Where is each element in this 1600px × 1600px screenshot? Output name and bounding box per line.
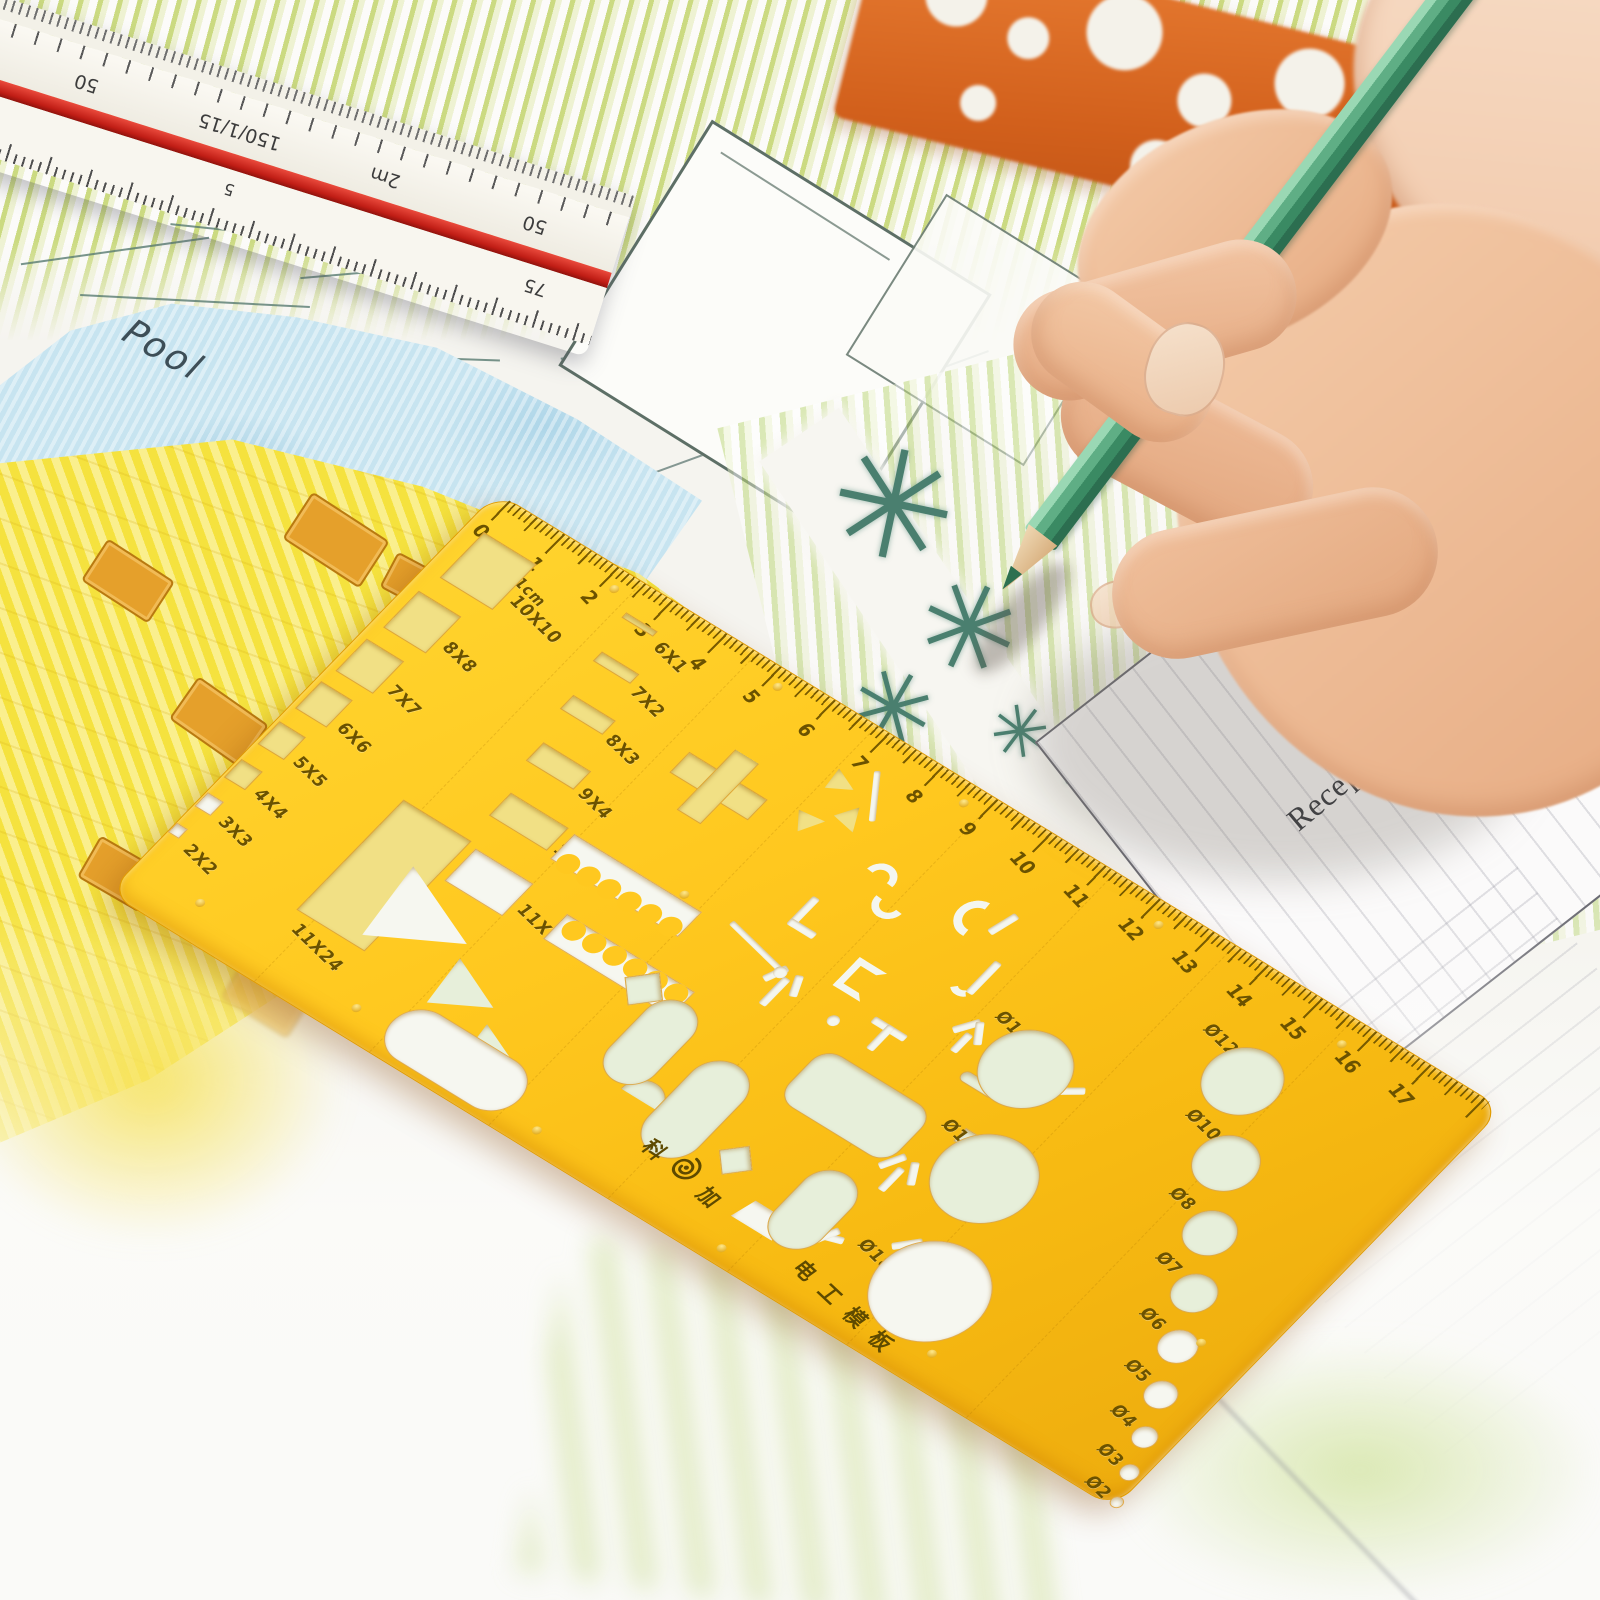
stencil-hole <box>1003 13 1054 64</box>
rivet-dot <box>193 897 207 908</box>
fork-cutout <box>788 975 804 998</box>
square-label: 2X2 <box>178 841 223 880</box>
circle-label: Ø7 <box>1150 1248 1187 1279</box>
product-photo: Pool ✳ ✳ ✳ ✳ ✳ Reception ✳ ✳ ✳ ✳ 50 150/… <box>0 0 1600 1600</box>
scale-ruler-number: 50 <box>72 69 102 97</box>
stencil-hole <box>956 81 1000 125</box>
needle-cutout <box>729 921 784 972</box>
slot-cutout-9x4 <box>526 742 592 790</box>
slash-cutout <box>869 771 881 822</box>
rivet-dot <box>715 1243 729 1254</box>
small-triangle-cutout <box>833 807 864 835</box>
square-label: 7X7 <box>381 682 426 721</box>
squiggle-cutout <box>862 862 898 893</box>
square-label: 4X4 <box>248 785 293 824</box>
slot-label: 8X3 <box>600 731 645 770</box>
rounded-rect-cutout <box>775 1046 936 1165</box>
rivet-dot <box>530 1125 544 1136</box>
square-label: 6X6 <box>331 719 376 758</box>
antenna-cutout <box>906 1162 920 1186</box>
squiggle-cutout <box>871 889 907 920</box>
l-glyph-cutout <box>786 918 817 940</box>
dot-cutout <box>824 1013 843 1028</box>
scale-ruler-number: 5 <box>221 179 236 200</box>
slot-label: 7X2 <box>625 683 670 722</box>
scale-ruler-number: 50 <box>520 210 550 238</box>
stadium-cutout <box>755 1160 871 1260</box>
antenna-cutout <box>877 1166 905 1192</box>
fork-cutout <box>758 976 791 1007</box>
slot-cutout-8x3 <box>560 695 616 735</box>
circle-cutout-10 <box>1177 1124 1276 1203</box>
j-curve-cutout <box>944 976 978 1001</box>
circle-label: Ø8 <box>1164 1184 1201 1215</box>
rivet-dot <box>925 1348 939 1359</box>
square-label: 5X5 <box>287 753 332 792</box>
y-glyph-cutout <box>973 1022 985 1046</box>
brand-character-right: 加 <box>689 1181 730 1213</box>
square-label: 8X8 <box>437 639 482 678</box>
square-label: 3X3 <box>213 813 258 852</box>
hook-cutout <box>949 896 1003 942</box>
y-glyph-cutout <box>949 1032 973 1054</box>
slot-cutout-11x5 <box>489 793 569 851</box>
slot-label: 6X1 <box>648 639 693 678</box>
slot-label: 9X4 <box>572 785 617 824</box>
rivet-dot <box>349 1002 363 1013</box>
circle-cutout-16 <box>906 1116 1063 1242</box>
stencil-hole <box>1078 0 1170 78</box>
scale-ruler-number: 75 <box>521 274 549 301</box>
circle-label: Ø6 <box>1134 1304 1171 1335</box>
diamond-cutout <box>719 1146 753 1175</box>
small-triangle-cutout <box>794 810 827 834</box>
slot-cutout-7x2 <box>593 651 640 684</box>
c-bracket-cutout <box>833 957 887 1002</box>
stencil-hole <box>919 0 994 33</box>
scale-ruler-number: 2m <box>367 162 403 192</box>
